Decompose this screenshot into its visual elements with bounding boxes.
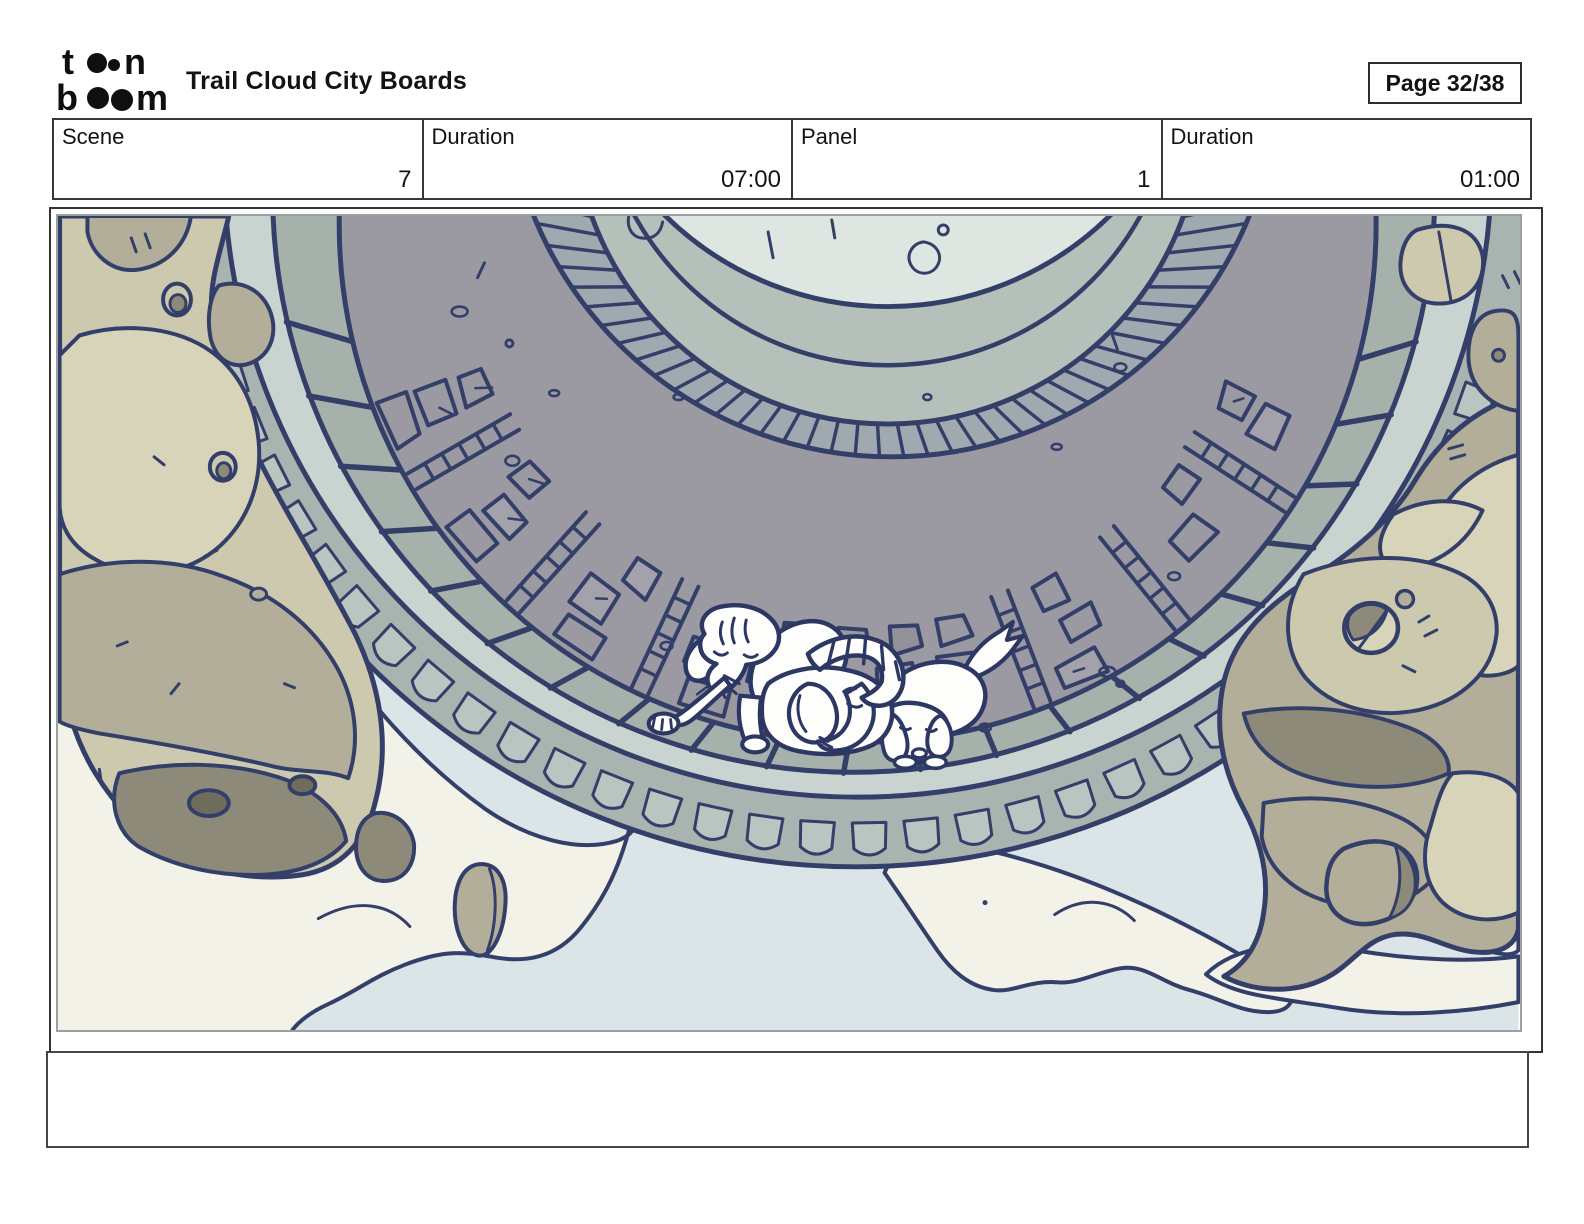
scene-duration-cell: Duration 07:00	[424, 120, 794, 198]
panel-label: Panel	[801, 124, 857, 150]
logo-dot-icon	[111, 89, 133, 111]
logo-dot-icon	[87, 53, 107, 73]
toonboom-logo-art: t n b m	[54, 38, 178, 114]
logo-letter-n: n	[124, 41, 146, 82]
logo-letter-m: m	[136, 77, 168, 114]
panel-value: 1	[1137, 166, 1150, 194]
scene-value: 7	[398, 166, 411, 194]
logo-letter-t: t	[62, 41, 74, 82]
storyboard-panel-artwork	[58, 216, 1520, 1030]
panel-cell: Panel 1	[793, 120, 1163, 198]
panel-info-row: Scene 7 Duration 07:00 Panel 1 Duration …	[52, 118, 1532, 200]
panel-duration-cell: Duration 01:00	[1163, 120, 1531, 198]
puppy-ear-right	[927, 716, 951, 757]
toonboom-logo: t n b m	[54, 38, 178, 114]
lemur-foreleg-2	[739, 696, 763, 742]
panel-duration-label: Duration	[1171, 124, 1254, 150]
panel-duration-value: 01:00	[1460, 166, 1520, 194]
scene-cell: Scene 7	[54, 120, 424, 198]
scene-duration-label: Duration	[432, 124, 515, 150]
logo-dot-icon	[87, 87, 109, 109]
project-title: Trail Cloud City Boards	[186, 46, 467, 116]
caption-box	[46, 1051, 1529, 1148]
elephant-ear	[789, 684, 837, 743]
storyboard-panel-frame	[49, 207, 1543, 1053]
page-number-badge: Page 32/38	[1368, 62, 1522, 104]
storyboard-panel	[56, 214, 1522, 1032]
scene-duration-value: 07:00	[721, 166, 781, 194]
logo-dot-icon	[108, 59, 120, 71]
scene-label: Scene	[62, 124, 124, 150]
sky-speck	[983, 900, 988, 905]
logo-letter-b: b	[56, 77, 78, 114]
